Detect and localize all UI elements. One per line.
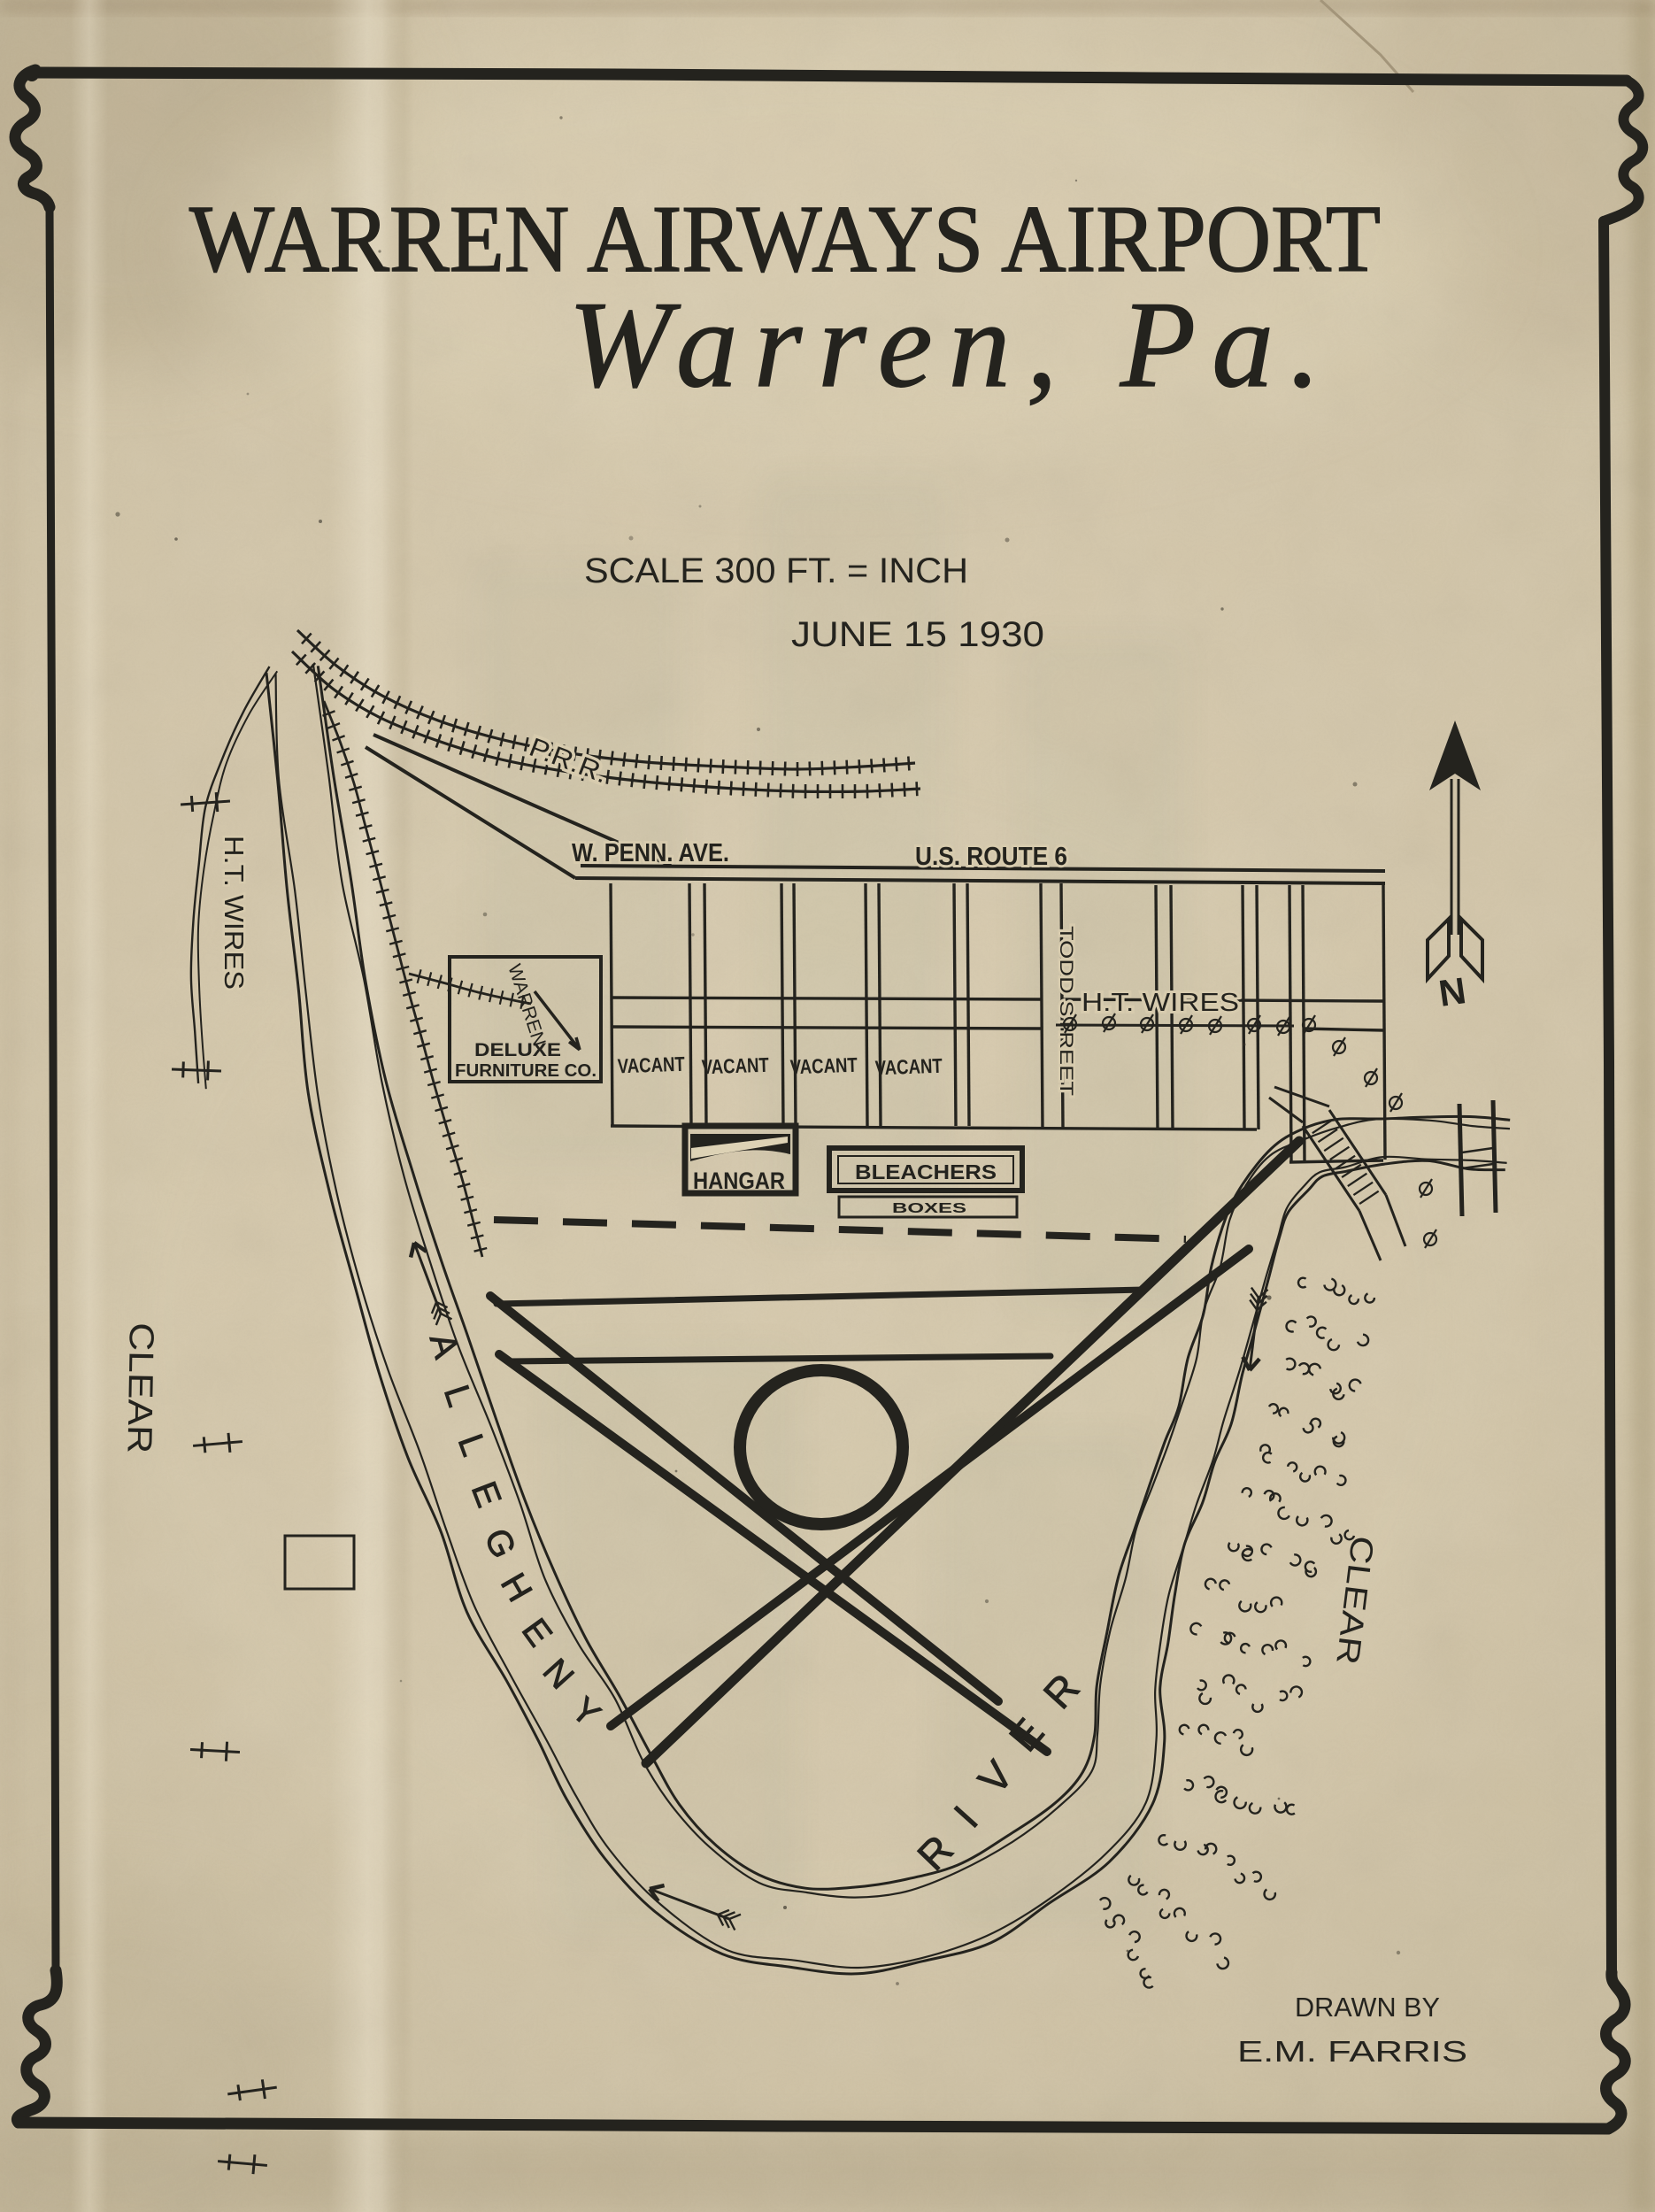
svg-text:HANGAR: HANGAR bbox=[693, 1168, 785, 1194]
svg-text:VACANT: VACANT bbox=[874, 1054, 943, 1080]
svg-text:CLEAR: CLEAR bbox=[119, 1322, 160, 1454]
svg-text:DELUXE: DELUXE bbox=[474, 1040, 561, 1060]
svg-text:BOXES: BOXES bbox=[892, 1201, 966, 1216]
svg-text:VACANT: VACANT bbox=[617, 1052, 685, 1078]
svg-text:Warren, Pa.: Warren, Pa. bbox=[568, 276, 1336, 413]
svg-text:DRAWN BY: DRAWN BY bbox=[1295, 1992, 1440, 2023]
svg-text:E.M. FARRIS: E.M. FARRIS bbox=[1237, 2035, 1467, 2068]
svg-text:JUNE 15 1930: JUNE 15 1930 bbox=[791, 615, 1044, 654]
svg-text:VACANT: VACANT bbox=[789, 1053, 858, 1079]
svg-text:N: N bbox=[1436, 969, 1469, 1014]
svg-text:W. PENN. AVE.: W. PENN. AVE. bbox=[572, 839, 729, 867]
svg-text:SCALE 300 FT. = INCH: SCALE 300 FT. = INCH bbox=[584, 551, 968, 590]
svg-text:H.T. WIRES: H.T. WIRES bbox=[1082, 989, 1239, 1017]
svg-text:TODD STREET: TODD STREET bbox=[1056, 926, 1076, 1096]
svg-text:U.S. ROUTE 6: U.S. ROUTE 6 bbox=[915, 843, 1067, 871]
svg-text:BLEACHERS: BLEACHERS bbox=[855, 1160, 997, 1183]
svg-text:VACANT: VACANT bbox=[701, 1053, 769, 1079]
svg-text:FURNITURE CO.: FURNITURE CO. bbox=[455, 1061, 597, 1081]
svg-text:H.T. WIRES: H.T. WIRES bbox=[219, 836, 250, 990]
